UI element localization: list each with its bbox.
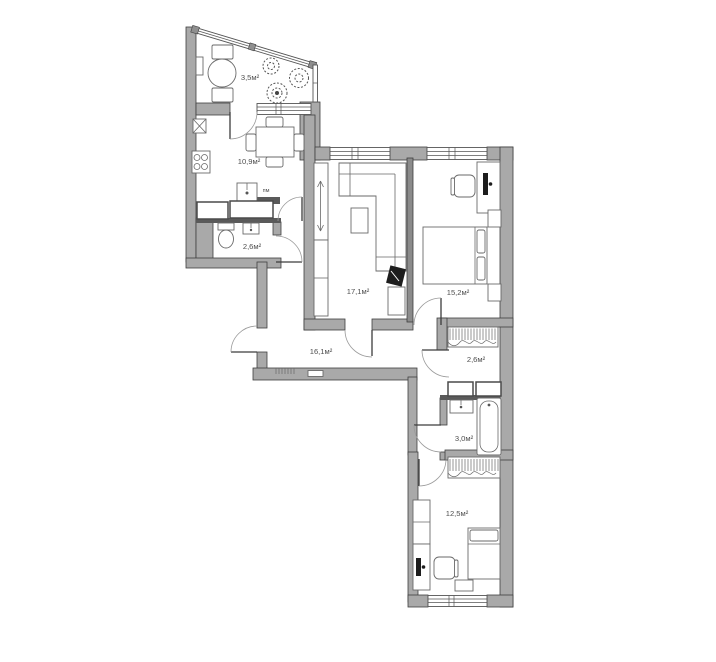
balcony-side-glazing	[313, 65, 318, 102]
dining-chair	[266, 157, 283, 167]
hall-cabinet	[476, 382, 501, 396]
dining-chair	[294, 134, 304, 151]
coffee-table	[351, 208, 368, 233]
living-room-window	[330, 148, 390, 160]
area-label-corridor: 2,6м²	[467, 355, 486, 364]
wall-segment	[500, 147, 513, 607]
wall-segment	[440, 318, 513, 327]
wall-shelf	[196, 57, 203, 75]
plant	[267, 83, 287, 103]
plant	[290, 69, 309, 88]
wall-segment	[407, 158, 413, 322]
balcony-table	[208, 59, 236, 87]
area-label-hallway: 16,1м²	[310, 347, 333, 356]
wall-segment	[196, 103, 230, 115]
threshold	[308, 371, 323, 377]
corridor-door	[422, 350, 449, 377]
bedroom-second-door	[419, 459, 446, 486]
nightstand	[488, 210, 501, 227]
wall-segment	[315, 147, 330, 160]
walls	[186, 27, 513, 607]
bed	[468, 528, 500, 579]
kitchen-cabinet	[230, 201, 273, 218]
wall-segment	[257, 262, 267, 328]
room-bedroom-master	[423, 162, 501, 301]
wall-segment	[487, 595, 513, 607]
dishwasher-label: пм	[263, 188, 270, 194]
living-room-door	[345, 330, 372, 357]
wall-segment	[253, 368, 417, 380]
wall-segment	[437, 318, 447, 350]
radiator	[276, 368, 294, 374]
toilet	[218, 223, 234, 248]
wardrobe-hatched	[448, 457, 500, 478]
bedroom-second-window	[428, 596, 487, 607]
corner-sofa	[339, 163, 406, 271]
plant	[263, 58, 279, 74]
shelving	[413, 500, 430, 544]
wall-segment	[408, 377, 417, 455]
wardrobe	[314, 163, 328, 240]
balcony-chair	[212, 45, 233, 59]
balcony-chair	[212, 88, 233, 102]
area-label-balcony: 3,5м²	[241, 73, 260, 82]
bedside-table	[455, 580, 473, 591]
hall-cabinet	[448, 382, 473, 396]
wall-segment	[408, 595, 428, 607]
room-bedroom-second	[413, 457, 500, 591]
windows	[191, 25, 487, 606]
sink	[237, 183, 257, 203]
wall-segment	[186, 27, 196, 262]
pillow	[470, 530, 498, 541]
wardrobe-hatched	[448, 327, 498, 347]
kitchen-sink-unit	[193, 119, 206, 133]
wall-segment	[304, 319, 345, 330]
area-label-bedroom-second: 12,5м²	[446, 509, 469, 518]
bathroom-main-door	[414, 425, 441, 452]
entrance-door	[231, 326, 257, 352]
kitchen-window	[257, 104, 311, 115]
kitchen-door	[278, 197, 302, 221]
area-label-bathroom-guest: 2,6м²	[243, 242, 262, 251]
wall-segment	[304, 115, 315, 330]
pillow	[477, 257, 485, 280]
bathtub	[477, 398, 501, 455]
desk-chair	[434, 557, 458, 579]
tv-stand	[388, 287, 405, 315]
dining-chair	[246, 134, 256, 151]
room-bathroom-main	[450, 398, 501, 455]
shelving	[314, 240, 328, 316]
dining-chair	[266, 117, 283, 127]
stove	[192, 151, 210, 173]
area-label-living: 17,1м²	[347, 287, 370, 296]
kitchen-cabinet	[197, 202, 228, 219]
nightstand	[488, 284, 501, 301]
pillow	[477, 230, 485, 253]
area-label-bedroom-master: 15,2м²	[447, 288, 470, 297]
sink	[243, 223, 259, 234]
desk-chair	[451, 175, 475, 197]
desk	[413, 544, 430, 590]
balcony-glazing	[191, 25, 317, 69]
wall-segment	[440, 398, 447, 425]
floor-plan-page: 3,5м² 10,9м² 2,6м² 17,1м² 15,2м² 16,1м² …	[0, 0, 716, 662]
bedroom-master-window	[427, 148, 487, 160]
desk	[477, 162, 500, 213]
area-label-bathroom-main: 3,0м²	[455, 434, 474, 443]
bed	[423, 227, 487, 284]
wall-segment	[273, 222, 281, 235]
wall-segment	[196, 218, 213, 262]
floor-plan: 3,5м² 10,9м² 2,6м² 17,1м² 15,2м² 16,1м² …	[0, 0, 716, 662]
area-label-kitchen: 10,9м²	[238, 157, 261, 166]
sink	[450, 400, 473, 413]
